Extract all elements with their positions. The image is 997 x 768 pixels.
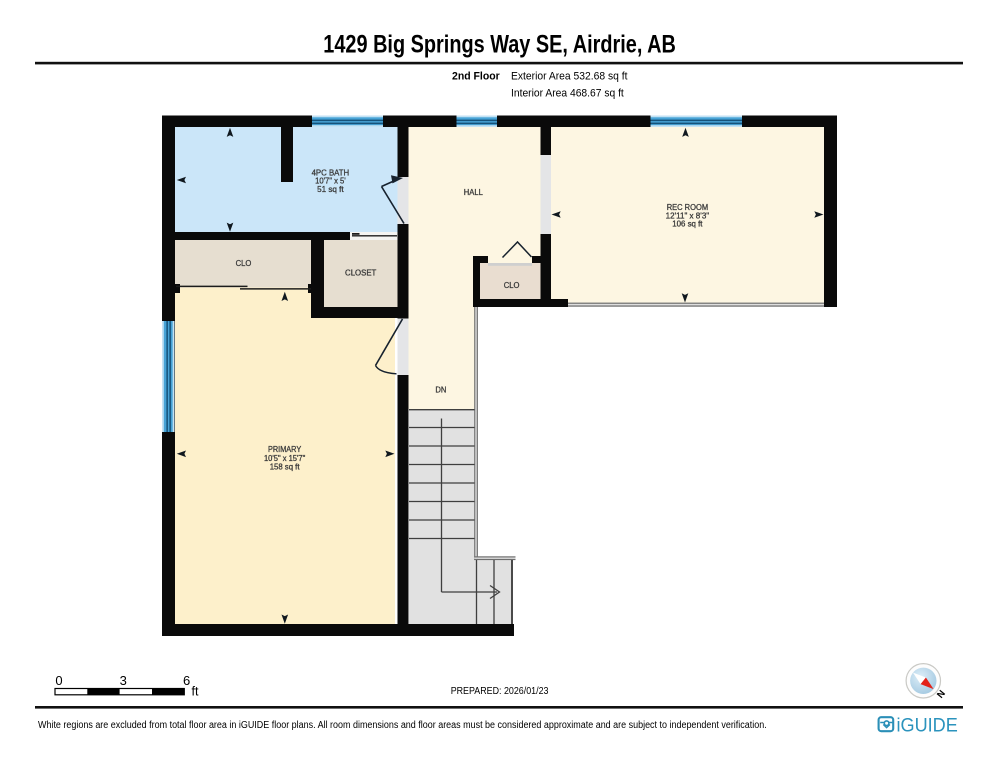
svg-text:White regions are excluded fro: White regions are excluded from total fl… [38, 720, 767, 731]
svg-text:Exterior Area 532.68 sq ft: Exterior Area 532.68 sq ft [511, 71, 628, 83]
svg-text:PRIMARY: PRIMARY [268, 445, 302, 454]
svg-text:CLO: CLO [504, 281, 520, 290]
svg-text:1429 Big Springs Way SE, Airdr: 1429 Big Springs Way SE, Airdrie, AB [323, 30, 676, 58]
svg-text:DN: DN [435, 386, 446, 395]
svg-text:3: 3 [120, 673, 127, 688]
svg-text:CLOSET: CLOSET [345, 268, 376, 277]
svg-text:158 sq ft: 158 sq ft [270, 462, 301, 471]
svg-text:106 sq ft: 106 sq ft [672, 220, 703, 229]
svg-text:Interior Area 468.67 sq ft: Interior Area 468.67 sq ft [511, 88, 624, 100]
svg-text:6: 6 [183, 673, 190, 688]
svg-text:51 sq ft: 51 sq ft [317, 185, 344, 194]
svg-text:PREPARED: 2026/01/23: PREPARED: 2026/01/23 [451, 686, 549, 697]
svg-text:2nd Floor: 2nd Floor [452, 71, 500, 83]
svg-text:CLO: CLO [236, 259, 252, 268]
svg-text:HALL: HALL [464, 188, 484, 197]
svg-text:0: 0 [55, 673, 62, 688]
svg-text:iGUIDE: iGUIDE [897, 714, 958, 736]
svg-text:ft: ft [192, 684, 199, 698]
